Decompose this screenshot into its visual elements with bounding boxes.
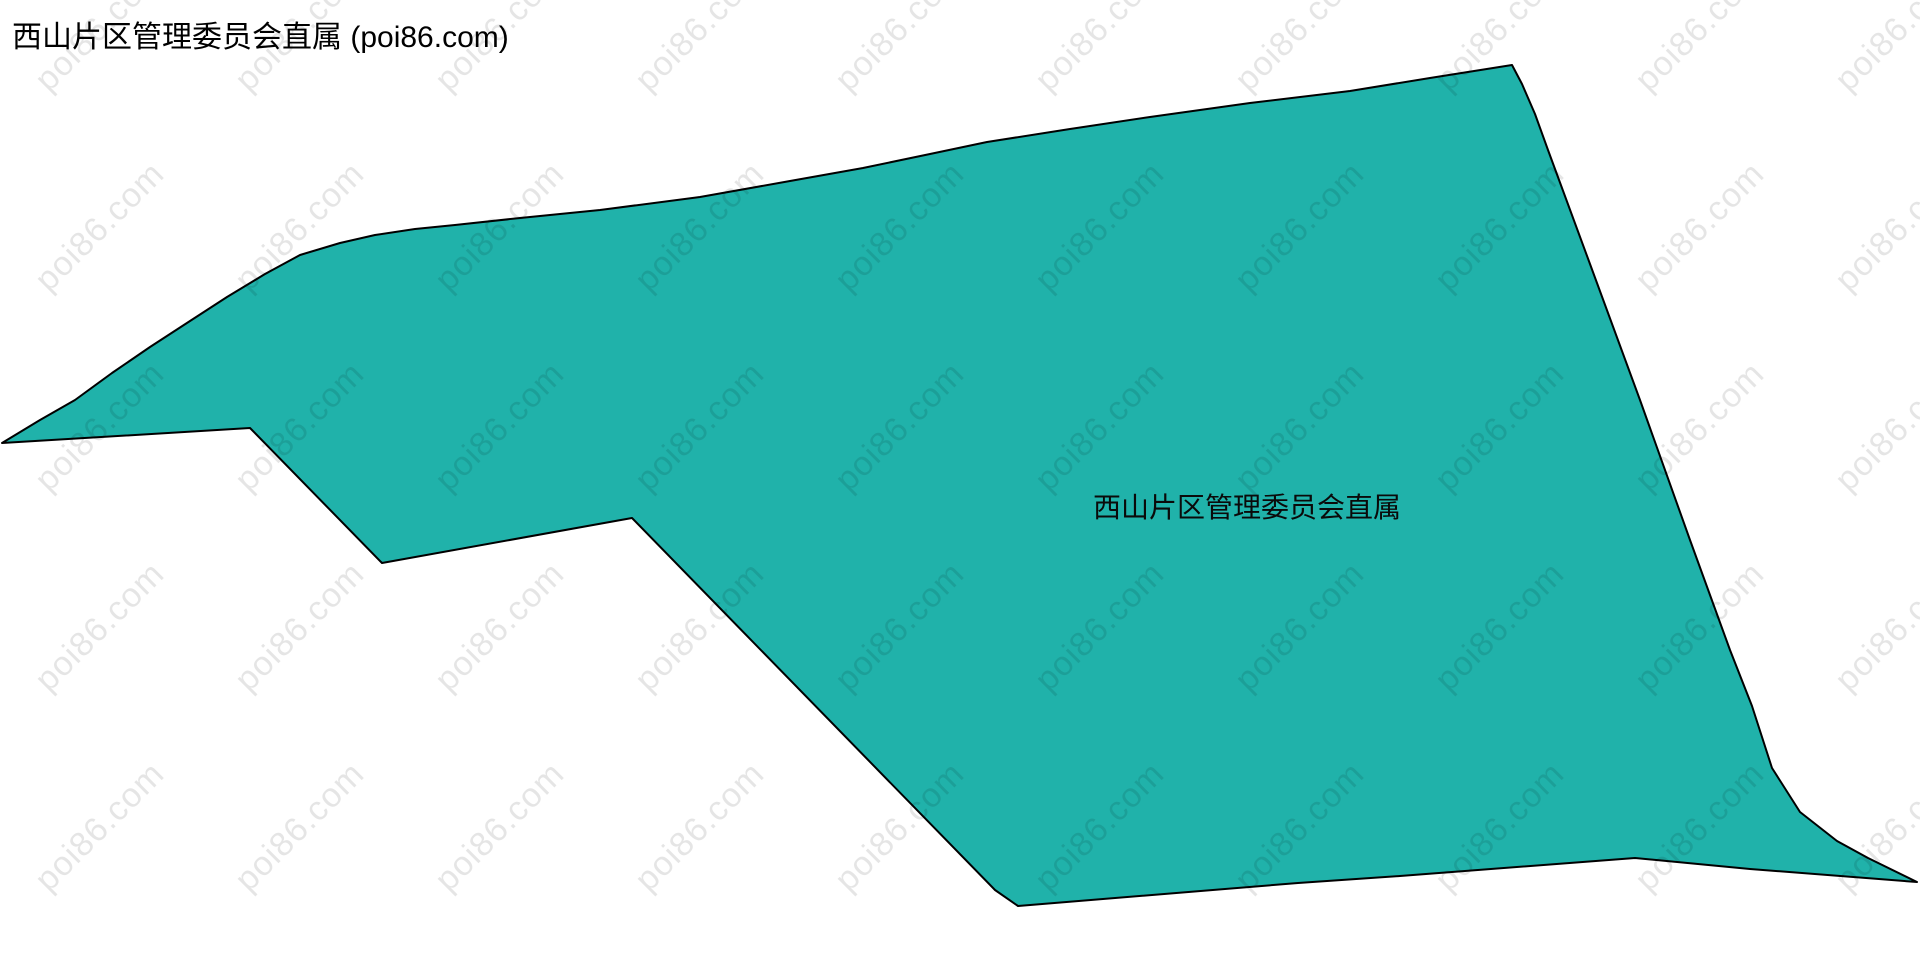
region-map-svg <box>0 0 1920 972</box>
page-title: 西山片区管理委员会直属 (poi86.com) <box>12 12 509 56</box>
map-canvas: poi86.compoi86.compoi86.compoi86.compoi8… <box>0 0 1920 972</box>
region-boundary-polygon <box>2 65 1917 906</box>
region-label: 西山片区管理委员会直属 <box>1093 486 1401 526</box>
